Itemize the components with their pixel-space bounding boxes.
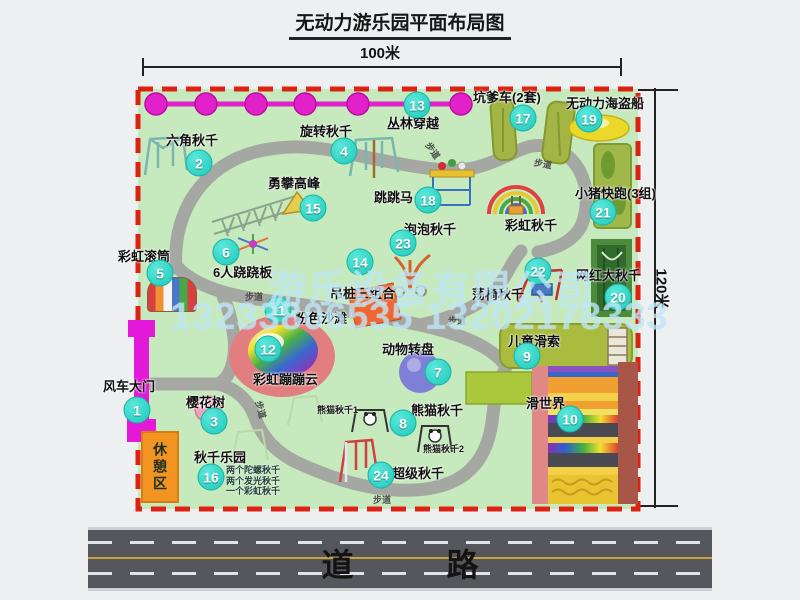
map-graphics — [0, 0, 800, 600]
cherry-tree-icon — [195, 396, 221, 426]
climbing-peak-icon — [212, 192, 311, 236]
piggy-run-icon — [594, 144, 631, 228]
panda-swing-2-label: 熊猫秋千2 — [423, 442, 464, 455]
panda-swing-1-label: 熊猫秋千1 — [317, 403, 358, 416]
big-net-swing-icon — [591, 239, 632, 317]
rainbow-roller-icon — [147, 277, 197, 312]
rainbow-bounce-cloud-icon — [248, 325, 318, 377]
pit-cart-icons — [490, 98, 576, 164]
pink-beach-icon — [229, 315, 335, 397]
seesaw-icon — [238, 234, 268, 254]
swing-park-note: 两个陀螺秋千 — [226, 465, 280, 476]
jungle-crossing-chain-icon — [145, 93, 472, 115]
pirate-ship-icon — [569, 115, 629, 141]
animal-turntable-icon — [399, 351, 441, 393]
bubble-swing-icon — [394, 255, 430, 297]
rainbow-swing-label: 彩虹秋千 — [505, 215, 557, 234]
swing-chair-icon — [518, 270, 562, 302]
swing-park-note: 一个彩虹秋千 — [226, 486, 280, 497]
swing-park-note: 两个发光秋千 — [226, 476, 280, 487]
rest-area: 休憩区 — [141, 431, 179, 503]
rainbow-swing-icon — [489, 187, 543, 214]
hexagon-swing-icon — [145, 137, 187, 175]
rest-area-label: 休憩区 — [150, 442, 170, 493]
children-zipline-icon — [500, 324, 632, 368]
swing-park-notes: 两个陀螺秋千两个发光秋千一个彩虹秋千 — [226, 465, 280, 497]
super-swing-icon — [340, 440, 378, 482]
